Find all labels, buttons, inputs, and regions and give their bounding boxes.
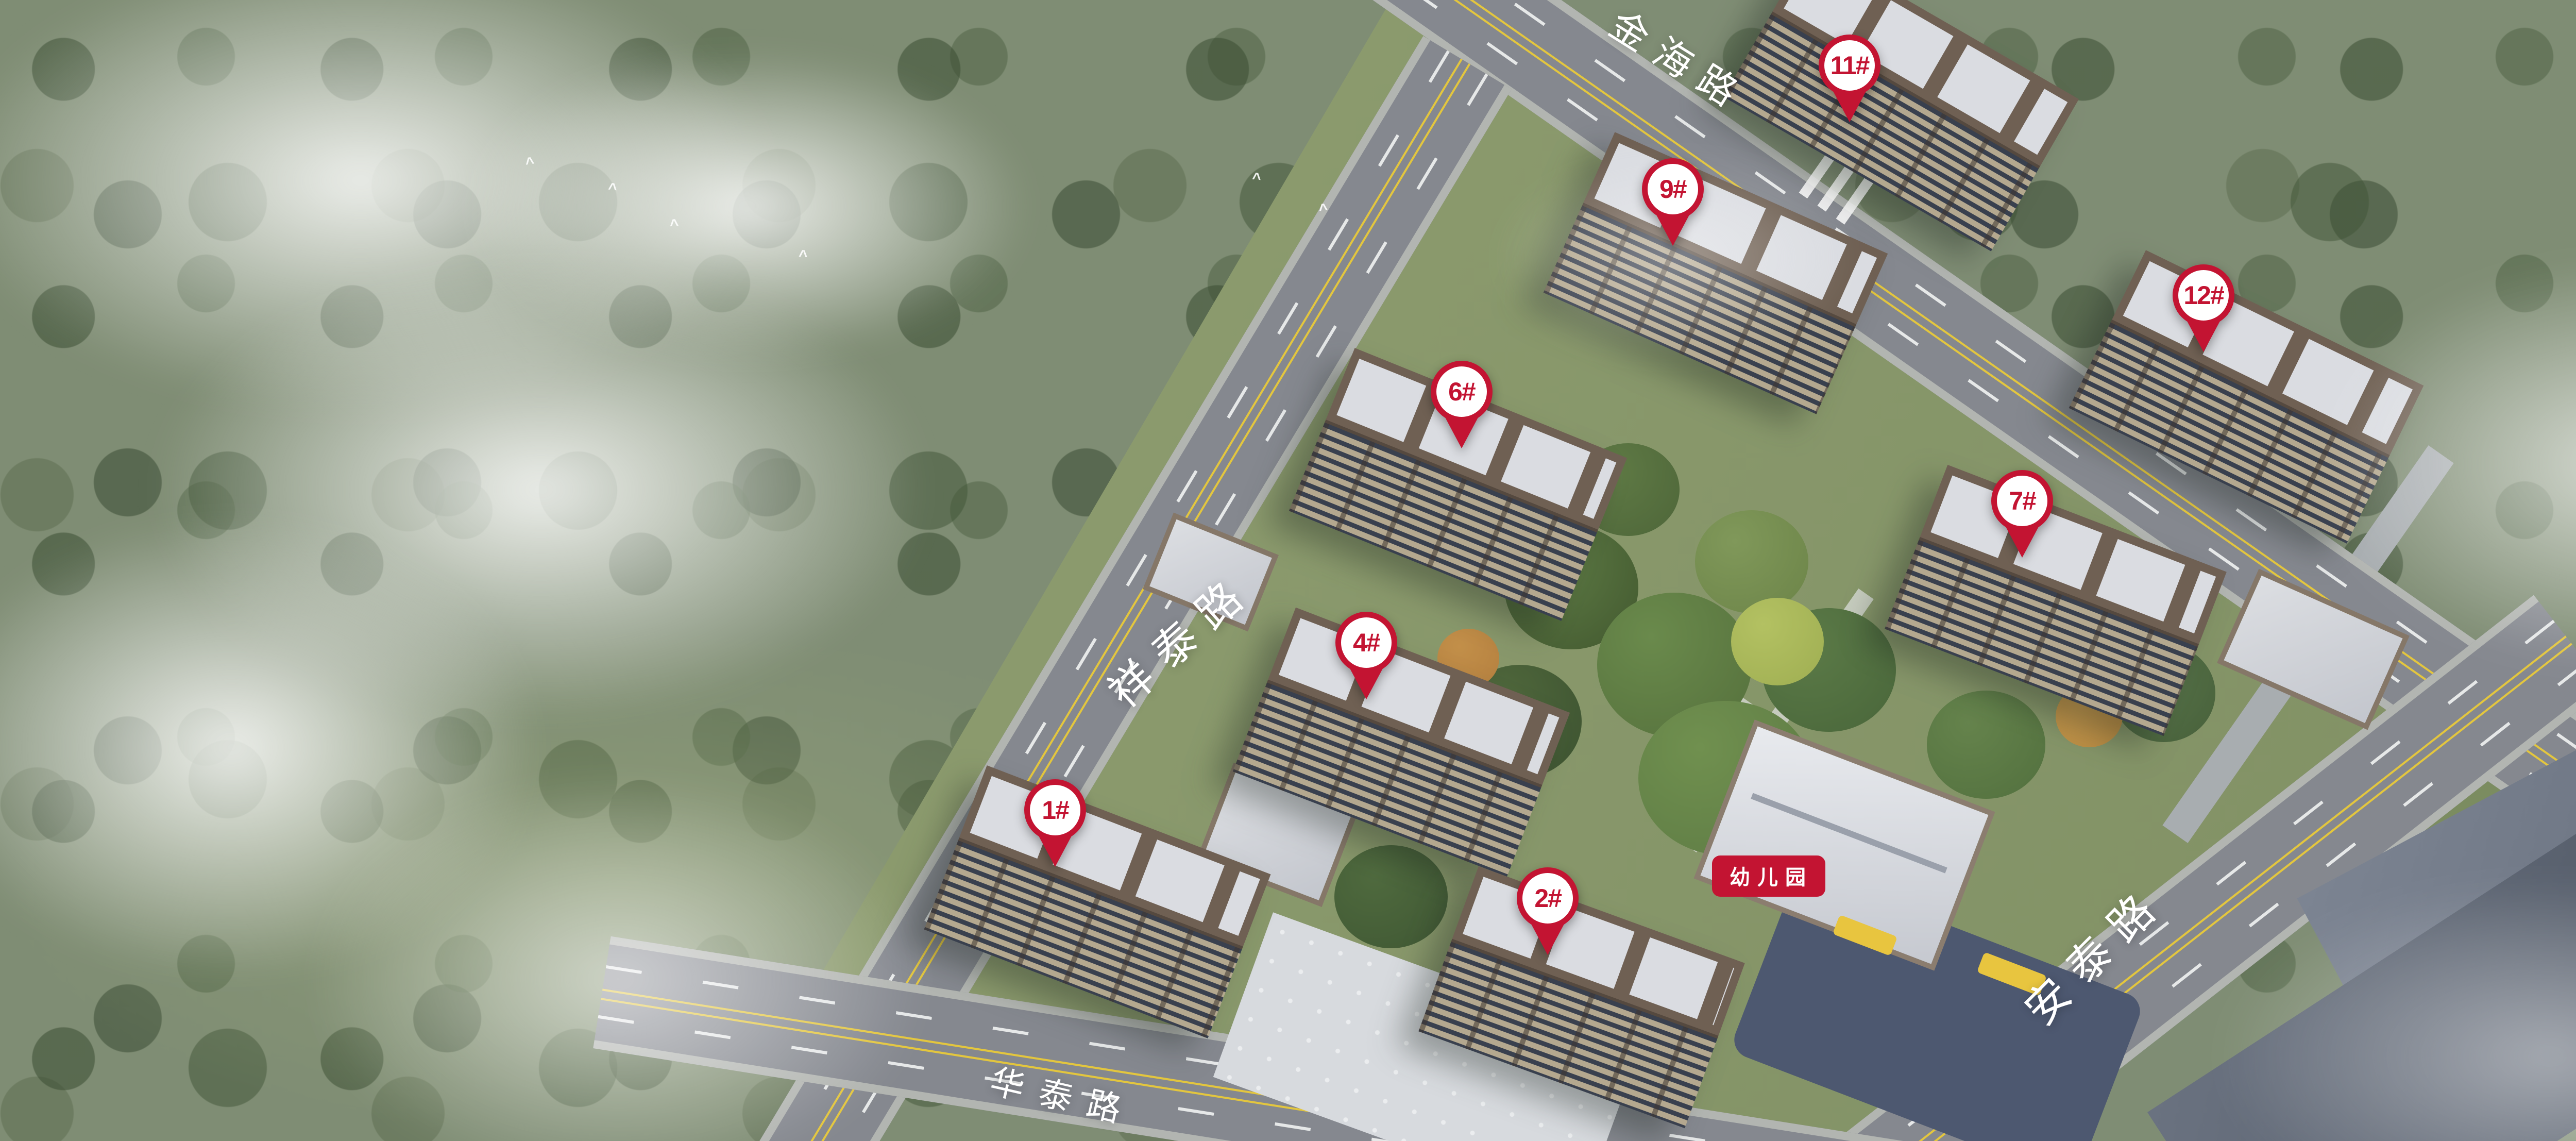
marker-label: 12# <box>2183 280 2223 310</box>
marker-bubble: 9# <box>1642 158 1704 220</box>
marker-tail-icon <box>1656 215 1689 246</box>
marker-label: 2# <box>1534 883 1561 913</box>
bird-icon: ^ <box>798 247 808 265</box>
bird-icon: ^ <box>1318 200 1329 219</box>
marker-bubble: 11# <box>1819 35 1880 96</box>
marker-tail-icon <box>2006 527 2039 558</box>
fog-patch <box>464 52 1030 361</box>
marker-tail-icon <box>2187 321 2220 352</box>
building-marker-12: 12# <box>2173 264 2234 352</box>
marker-label: 9# <box>1659 174 1686 204</box>
marker-tail-icon <box>1445 417 1478 448</box>
marker-label: 4# <box>1353 628 1380 658</box>
marker-label: 6# <box>1448 377 1475 407</box>
bird-icon: ^ <box>1251 170 1262 188</box>
marker-label: 11# <box>1831 51 1869 80</box>
courtyard-tree <box>1927 691 2045 799</box>
building-marker-11: 11# <box>1819 35 1880 122</box>
marker-tail-icon <box>1531 924 1564 955</box>
marker-bubble: 7# <box>1991 470 2053 532</box>
marker-bubble: 12# <box>2173 264 2234 326</box>
building-marker-4: 4# <box>1335 612 1397 699</box>
marker-bubble: 4# <box>1335 612 1397 674</box>
bird-icon: ^ <box>607 180 618 198</box>
marker-bubble: 1# <box>1024 779 1086 841</box>
marker-tail-icon <box>1350 668 1383 699</box>
bird-icon: ^ <box>669 216 680 234</box>
building-marker-6: 6# <box>1431 361 1493 448</box>
marker-bubble: 6# <box>1431 361 1493 423</box>
courtyard-tree <box>1731 598 1824 685</box>
building-marker-2: 2# <box>1517 867 1579 955</box>
birds-eye-rendering: ^ ^ ^ ^ ^ ^ 金海路祥泰路安泰路华泰路 1# 2# 4# 6# 7# … <box>0 0 2576 1141</box>
building-marker-7: 7# <box>1991 470 2053 558</box>
marker-label: 7# <box>2009 486 2036 516</box>
building-marker-9: 9# <box>1642 158 1704 246</box>
courtyard-tree <box>1334 845 1448 948</box>
marker-label: 1# <box>1042 795 1069 825</box>
building-marker-1: 1# <box>1024 779 1086 867</box>
kindergarten-badge: 幼儿园 <box>1712 855 1825 897</box>
marker-tail-icon <box>1833 91 1866 122</box>
courtyard-tree <box>1695 510 1808 613</box>
marker-bubble: 2# <box>1517 867 1579 929</box>
marker-tail-icon <box>1039 836 1072 867</box>
